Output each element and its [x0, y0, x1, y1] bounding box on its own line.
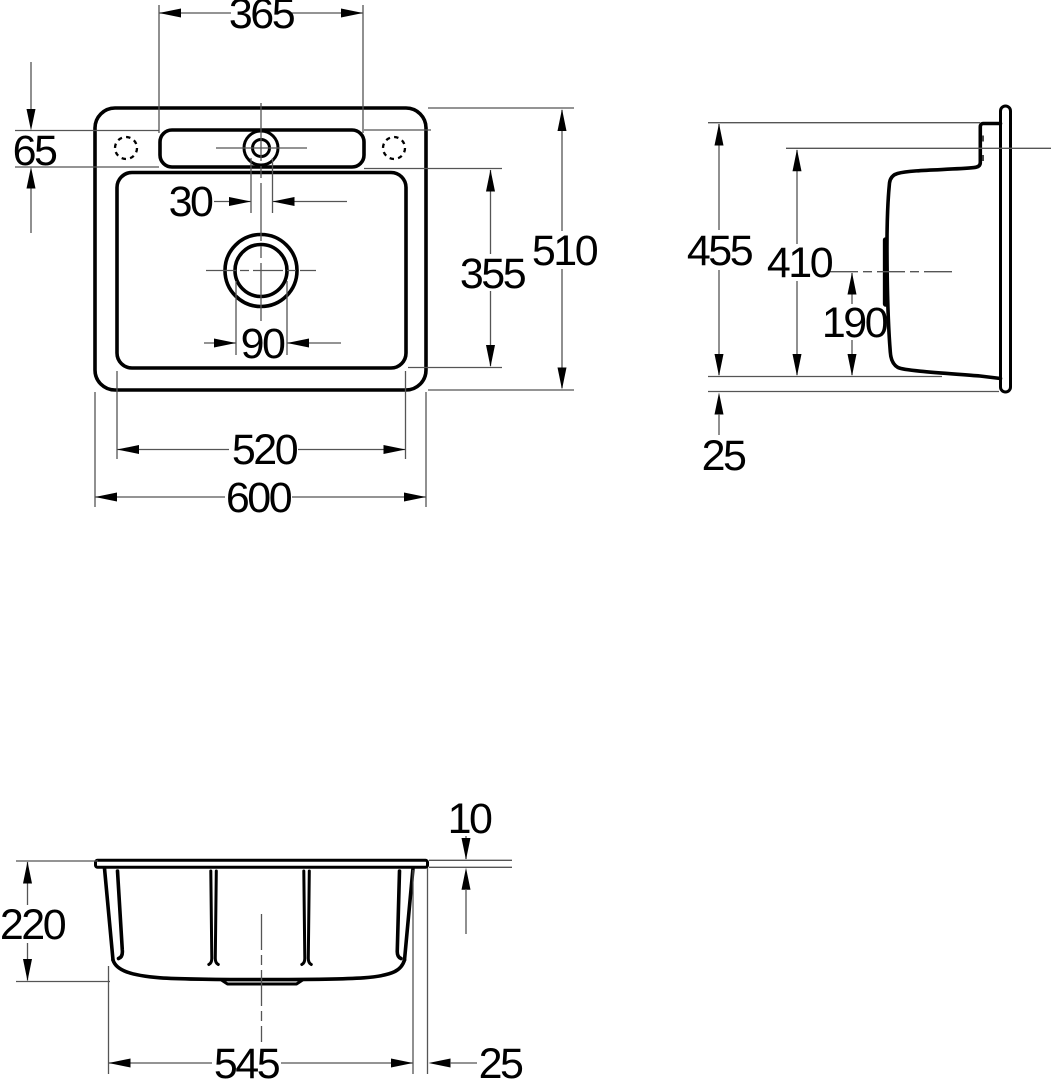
arrow-right	[384, 445, 406, 454]
arrow-down	[23, 959, 32, 981]
front-bottom-contour	[113, 960, 405, 980]
front-rib-right	[302, 871, 312, 965]
arrow-up	[23, 862, 32, 884]
front-rib-left	[209, 871, 219, 965]
dim-label-basin-width: 520	[232, 426, 298, 474]
dim-label-rim-overhang: 25	[479, 1040, 523, 1080]
dim-10: 10	[429, 795, 512, 934]
plan-optional-hole-left	[115, 137, 137, 159]
arrow-up	[793, 149, 802, 171]
front-left-wall-outer	[105, 868, 114, 960]
arrow-up	[558, 109, 567, 131]
dim-label-basin-top-height: 410	[767, 239, 833, 287]
dim-label-flange-offset: 25	[702, 432, 746, 480]
arrow-up	[715, 393, 724, 415]
arrow-down	[558, 368, 567, 390]
front-view: 220 10 545 25	[0, 795, 523, 1080]
dim-label-overall-height: 455	[687, 227, 753, 275]
arrow-right	[391, 1059, 413, 1068]
dim-label-overall-width: 600	[226, 474, 292, 522]
arrow-left	[109, 1059, 131, 1068]
arrow-left	[117, 445, 139, 454]
arrow-right	[404, 493, 426, 502]
arrow-right	[341, 9, 363, 18]
arrow-up	[848, 273, 857, 295]
front-right-wall-inner	[397, 871, 401, 959]
arrow-up	[462, 868, 471, 890]
dim-label-tap-hole: 30	[169, 178, 213, 226]
front-left-wall-inner	[118, 871, 123, 959]
sink-technical-drawing: 365 65 30	[0, 0, 1051, 1080]
side-view: 455 410 190 25	[687, 106, 1051, 480]
dim-label-ledge-depth: 65	[13, 127, 57, 175]
dim-label-ledge-width: 365	[229, 0, 295, 38]
arrow-left	[95, 493, 117, 502]
technical-drawing-canvas: 365 65 30	[0, 0, 1051, 1080]
arrow-left	[159, 9, 181, 18]
arrow-up	[486, 170, 495, 192]
dim-220: 220	[0, 861, 110, 982]
arrow-left	[273, 197, 295, 206]
dim-25-side: 25	[702, 393, 746, 481]
dim-label-body-width: 545	[214, 1040, 280, 1080]
dim-label-drain: 90	[241, 320, 285, 368]
dim-455: 455	[687, 124, 753, 377]
arrow-right	[229, 197, 251, 206]
front-right-wall-outer	[405, 868, 414, 960]
plan-optional-hole-right	[383, 137, 405, 159]
side-body-profile	[887, 124, 1001, 379]
dim-520: 520	[117, 371, 406, 474]
dim-label-drain-center-height: 190	[822, 299, 888, 347]
dim-label-rim-thickness: 10	[448, 795, 492, 843]
arrow-right	[214, 339, 236, 348]
dim-190: 190	[822, 273, 888, 377]
arrow-down	[848, 354, 857, 376]
dim-355: 355	[364, 169, 526, 368]
arrow-left	[287, 339, 309, 348]
arrow-up	[715, 124, 724, 146]
arrow-down	[715, 354, 724, 376]
arrow-down	[486, 345, 495, 367]
dim-label-basin-depth: 355	[460, 250, 526, 298]
front-rim-plate	[96, 860, 428, 867]
dim-510: 510	[428, 108, 598, 390]
dim-label-overall-depth: 510	[532, 227, 598, 275]
plan-view: 365 65 30	[13, 0, 598, 522]
arrow-left	[429, 1059, 451, 1068]
arrow-down	[793, 354, 802, 376]
dim-label-bowl-depth: 220	[0, 901, 66, 949]
dim-545-25: 545 25	[109, 868, 523, 1080]
